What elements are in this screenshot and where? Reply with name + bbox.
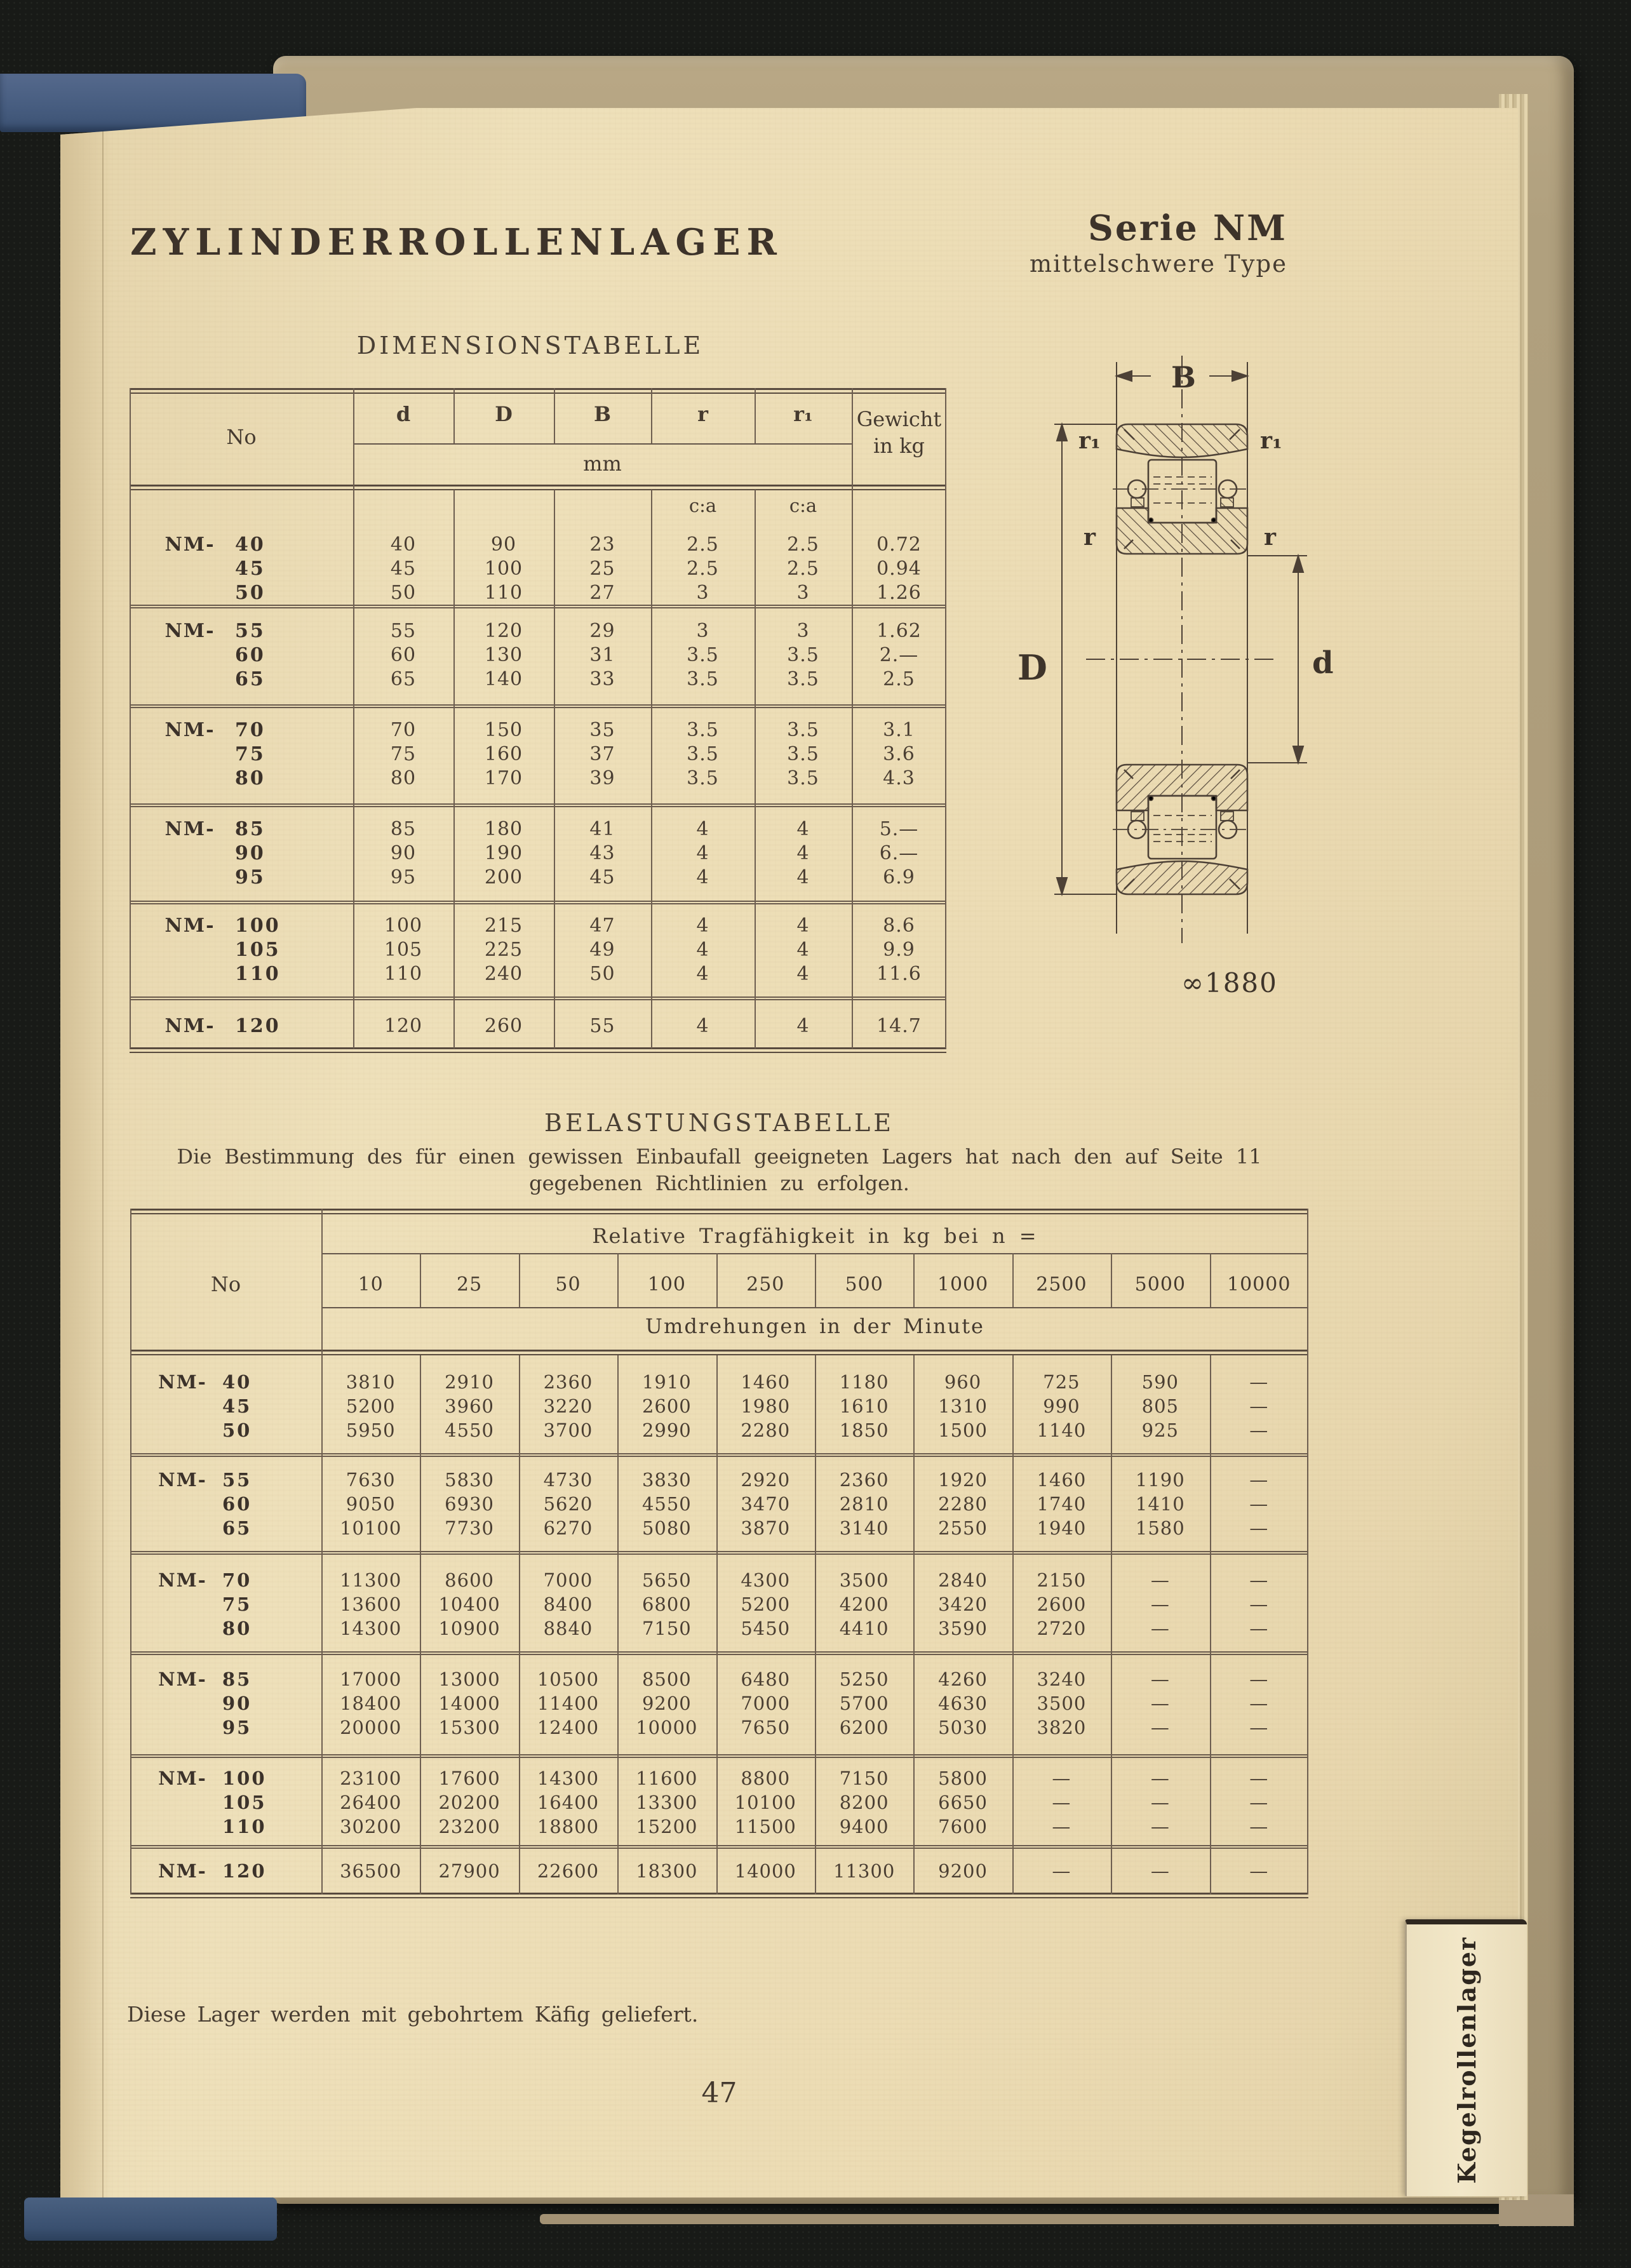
cell-r: 3: [651, 581, 755, 605]
cell-r: 4: [651, 817, 755, 842]
cell-r: 3.5: [651, 668, 755, 692]
table-row: 75 75 160 37 3.5 3.5 3.6: [130, 742, 946, 767]
bearing-size: 95: [222, 1717, 252, 1738]
cell-r1: 4: [755, 842, 852, 866]
bearing-size: 100: [235, 915, 281, 937]
bearing-number-cell: 45: [130, 557, 353, 581]
scanned-catalog-photo: { "scan": { "title": "ZYLINDERROLLENLAGE…: [0, 0, 1631, 2268]
cell-n5000: —: [1111, 1815, 1209, 1839]
table-row: 105 105 225 49 4 4 9.9: [130, 938, 946, 962]
cell-B: 37: [554, 742, 651, 767]
cell-B: 39: [554, 767, 651, 791]
column-header-D: D: [453, 402, 554, 426]
bearing-number-cell: 95: [130, 1715, 321, 1740]
group-separator: [130, 1845, 1308, 1849]
bearing-size: 100: [222, 1768, 267, 1789]
bearing-size: 65: [235, 668, 265, 690]
bearing-size: 75: [235, 743, 265, 765]
cell-r: 4: [651, 914, 755, 938]
cell-d: 50: [353, 581, 453, 605]
cell-n2500: —: [1012, 1790, 1111, 1815]
cell-n250: 7000: [716, 1691, 815, 1715]
bearing-prefix: NM-: [145, 619, 235, 643]
cell-n10: 11300: [321, 1568, 420, 1592]
cell-B: 43: [554, 842, 651, 866]
table-row: 95 95 200 45 4 4 6.9: [130, 866, 946, 890]
cell-n10000: —: [1210, 1715, 1308, 1740]
cell-d: 120: [353, 1014, 453, 1038]
table-rule: [353, 443, 852, 445]
cell-n50: 3220: [519, 1394, 617, 1418]
cell-n100: 3830: [617, 1468, 716, 1492]
bearing-size: 40: [222, 1371, 252, 1393]
cell-B: 49: [554, 938, 651, 962]
cell-d: 110: [353, 962, 453, 986]
dimension-group-rows: NM-120 120 260 55 4 4 14.7: [130, 1014, 946, 1038]
cell-n10000: —: [1210, 1370, 1308, 1394]
cell-n50: 12400: [519, 1715, 617, 1740]
cell-n50: 2360: [519, 1370, 617, 1394]
cell-r1: 4: [755, 962, 852, 986]
cell-n2500: 990: [1012, 1394, 1111, 1418]
cell-n500: 2810: [815, 1492, 913, 1516]
cell-n10: 30200: [321, 1815, 420, 1839]
cell-weight: 8.6: [852, 914, 946, 938]
cell-r1: 4: [755, 817, 852, 842]
cell-n250: 14000: [716, 1859, 815, 1883]
bearing-number-cell: 90: [130, 842, 353, 866]
cell-n10000: —: [1210, 1667, 1308, 1691]
cell-n5000: 805: [1111, 1394, 1209, 1418]
cell-n100: 9200: [617, 1691, 716, 1715]
cell-n500: 2360: [815, 1468, 913, 1492]
cell-n100: 5080: [617, 1516, 716, 1540]
cell-n25: 5830: [420, 1468, 518, 1492]
ca-label-r: c:a: [651, 495, 755, 516]
bearing-size: 90: [235, 842, 265, 864]
cell-n2500: 2150: [1012, 1568, 1111, 1592]
cell-n5000: 925: [1111, 1418, 1209, 1442]
cell-n500: 7150: [815, 1766, 913, 1790]
cell-n25: 7730: [420, 1516, 518, 1540]
cell-weight: 6.—: [852, 842, 946, 866]
column-header-r: r: [651, 402, 755, 426]
cell-n250: 10100: [716, 1790, 815, 1815]
cell-D: 225: [453, 938, 554, 962]
load-table-group: NM-70 11300 8600 7000 5650 4300 3500 284…: [130, 1568, 1308, 1641]
load-group-rows: NM-100 23100 17600 14300 11600 8800 7150…: [130, 1766, 1308, 1839]
cell-n25: 10400: [420, 1592, 518, 1616]
cell-n100: 5650: [617, 1568, 716, 1592]
series-name: Serie NM: [937, 208, 1287, 248]
table-row: 80 14300 10900 8840 7150 5450 4410 3590 …: [130, 1616, 1308, 1641]
cell-n10: 26400: [321, 1790, 420, 1815]
cell-r: 4: [651, 938, 755, 962]
group-separator: [130, 1651, 1308, 1655]
cell-n5000: —: [1111, 1691, 1209, 1715]
cell-d: 80: [353, 767, 453, 791]
table-row: NM-100 100 215 47 4 4 8.6: [130, 914, 946, 938]
speed-column-header: 1000: [913, 1273, 1012, 1296]
bearing-number-cell: 75: [130, 742, 353, 767]
cell-r: 3.5: [651, 742, 755, 767]
cell-n50: 3700: [519, 1418, 617, 1442]
load-group-rows: NM-85 17000 13000 10500 8500 6480 5250 4…: [130, 1667, 1308, 1740]
cell-n1000: 1310: [913, 1394, 1012, 1418]
cell-r: 4: [651, 842, 755, 866]
cell-n1000: 3420: [913, 1592, 1012, 1616]
cell-d: 100: [353, 914, 453, 938]
cell-n10000: —: [1210, 1468, 1308, 1492]
cell-n10: 10100: [321, 1516, 420, 1540]
bearing-size: 110: [235, 963, 281, 985]
bearing-prefix: NM-: [145, 533, 235, 557]
cell-D: 160: [453, 742, 554, 767]
table-rule: [321, 1307, 1308, 1308]
bearing-prefix: NM-: [143, 1468, 222, 1492]
cell-D: 215: [453, 914, 554, 938]
table-row: 95 20000 15300 12400 10000 7650 6200 503…: [130, 1715, 1308, 1740]
bearing-size: 105: [222, 1792, 267, 1813]
load-span-header: Relative Tragfähigkeit in kg bei n =: [321, 1224, 1308, 1248]
cell-n5000: —: [1111, 1667, 1209, 1691]
cell-d: 75: [353, 742, 453, 767]
bearing-size: 45: [222, 1395, 252, 1417]
cell-n500: 4200: [815, 1592, 913, 1616]
cell-n250: 5450: [716, 1616, 815, 1641]
bearing-number-cell: 45: [130, 1394, 321, 1418]
cell-n100: 2990: [617, 1418, 716, 1442]
table-row: 75 13600 10400 8400 6800 5200 4200 3420 …: [130, 1592, 1308, 1616]
cell-B: 45: [554, 866, 651, 890]
cell-n2500: 2600: [1012, 1592, 1111, 1616]
cell-r1: 4: [755, 938, 852, 962]
bearing-number-cell: 65: [130, 1516, 321, 1540]
cell-n25: 2910: [420, 1370, 518, 1394]
bearing-size: 70: [222, 1569, 252, 1591]
group-separator: [130, 996, 946, 1000]
cell-n25: 23200: [420, 1815, 518, 1839]
table-rule: [130, 1047, 946, 1053]
cell-n2500: 3500: [1012, 1691, 1111, 1715]
cell-n250: 2280: [716, 1418, 815, 1442]
bearing-number-cell: 110: [130, 962, 353, 986]
load-table-group: NM-100 23100 17600 14300 11600 8800 7150…: [130, 1766, 1308, 1839]
bearing-number-cell: 75: [130, 1592, 321, 1616]
load-group-rows: NM-70 11300 8600 7000 5650 4300 3500 284…: [130, 1568, 1308, 1641]
cell-D: 130: [453, 643, 554, 668]
speed-column-header: 25: [420, 1273, 518, 1296]
cell-n5000: —: [1111, 1790, 1209, 1815]
dimension-group-rows: NM-85 85 180 41 4 4 5.— 90 90: [130, 817, 946, 890]
cell-D: 140: [453, 668, 554, 692]
cell-n500: 11300: [815, 1859, 913, 1883]
cell-weight: 3.6: [852, 742, 946, 767]
group-separator: [130, 1453, 1308, 1457]
cell-D: 120: [453, 619, 554, 643]
cell-n10000: —: [1210, 1592, 1308, 1616]
load-table-group: NM-55 7630 5830 4730 3830 2920 2360 1920…: [130, 1468, 1308, 1540]
cell-n10000: —: [1210, 1418, 1308, 1442]
table-row: NM-55 7630 5830 4730 3830 2920 2360 1920…: [130, 1468, 1308, 1492]
cell-n250: 4300: [716, 1568, 815, 1592]
page-gutter-shading: [60, 108, 119, 2198]
intro-line-2: gegebenen Richtlinien zu erfolgen.: [130, 1171, 1308, 1195]
cell-r: 4: [651, 866, 755, 890]
cell-n100: 18300: [617, 1859, 716, 1883]
bearing-number-cell: NM-55: [130, 1468, 321, 1492]
cell-n10000: —: [1210, 1691, 1308, 1715]
bearing-prefix: NM-: [143, 1859, 222, 1883]
bearing-number-cell: 50: [130, 1418, 321, 1442]
bearing-size: 60: [222, 1493, 252, 1515]
bearing-size: 55: [235, 620, 265, 642]
bearing-number-cell: 90: [130, 1691, 321, 1715]
dimension-table-group: NM-120 120 260 55 4 4 14.7: [130, 1014, 946, 1038]
cell-n250: 1460: [716, 1370, 815, 1394]
cell-d: 105: [353, 938, 453, 962]
cell-B: 41: [554, 817, 651, 842]
table-row: NM-70 11300 8600 7000 5650 4300 3500 284…: [130, 1568, 1308, 1592]
cell-n1000: 4630: [913, 1691, 1012, 1715]
cell-d: 95: [353, 866, 453, 890]
cell-n50: 8400: [519, 1592, 617, 1616]
table-row: NM-85 85 180 41 4 4 5.—: [130, 817, 946, 842]
table-rule: [130, 388, 946, 394]
cell-r1: 3.5: [755, 718, 852, 742]
bearing-prefix: NM-: [143, 1370, 222, 1394]
cell-r: 2.5: [651, 557, 755, 581]
cell-B: 29: [554, 619, 651, 643]
cell-n2500: 725: [1012, 1370, 1111, 1394]
cell-n2500: 1460: [1012, 1468, 1111, 1492]
cell-n500: 3140: [815, 1516, 913, 1540]
cell-n1000: 4260: [913, 1667, 1012, 1691]
bearing-prefix: NM-: [145, 1014, 235, 1038]
cell-n2500: —: [1012, 1859, 1111, 1883]
cell-n500: 3500: [815, 1568, 913, 1592]
dimension-group-rows: NM-40 40 90 23 2.5 2.5 0.72 45: [130, 533, 946, 605]
cell-n100: 13300: [617, 1790, 716, 1815]
cell-n250: 5200: [716, 1592, 815, 1616]
cell-n5000: 590: [1111, 1370, 1209, 1394]
cell-n500: 5250: [815, 1667, 913, 1691]
load-group-rows: NM-120 36500 27900 22600 18300 14000 113…: [130, 1859, 1308, 1883]
cell-D: 240: [453, 962, 554, 986]
cell-n10000: —: [1210, 1815, 1308, 1839]
cell-d: 65: [353, 668, 453, 692]
table-row: 45 5200 3960 3220 2600 1980 1610 1310 99…: [130, 1394, 1308, 1418]
cell-n25: 20200: [420, 1790, 518, 1815]
book-cover-bottom-edge: [540, 2214, 1529, 2224]
column-header-no: No: [130, 425, 353, 449]
cell-n1000: 1500: [913, 1418, 1012, 1442]
dimension-table-title: DIMENSIONSTABELLE: [308, 332, 753, 359]
dimension-table-group: NM-70 70 150 35 3.5 3.5 3.1 75: [130, 718, 946, 791]
cell-weight: 5.—: [852, 817, 946, 842]
cell-r1: 3.5: [755, 643, 852, 668]
cell-n10000: —: [1210, 1492, 1308, 1516]
dimension-table-group: NM-55 55 120 29 3 3 1.62 60 6: [130, 619, 946, 692]
bearing-prefix: NM-: [145, 718, 235, 742]
cell-n5000: —: [1111, 1592, 1209, 1616]
cell-n5000: —: [1111, 1616, 1209, 1641]
cell-n10: 5200: [321, 1394, 420, 1418]
drawing-label-r1-right: r₁: [1260, 427, 1282, 454]
cell-r1: 3.5: [755, 767, 852, 791]
bearing-number-cell: 60: [130, 1492, 321, 1516]
cell-r1: 3.5: [755, 668, 852, 692]
cell-n250: 1980: [716, 1394, 815, 1418]
bearing-number-cell: 60: [130, 643, 353, 668]
cell-n10000: —: [1210, 1394, 1308, 1418]
table-row: NM-85 17000 13000 10500 8500 6480 5250 4…: [130, 1667, 1308, 1691]
cell-weight: 11.6: [852, 962, 946, 986]
cell-r: 2.5: [651, 533, 755, 557]
footer-note: Diese Lager werden mit gebohrtem Käfig g…: [127, 2002, 698, 2027]
cell-D: 90: [453, 533, 554, 557]
cell-r: 3: [651, 619, 755, 643]
cell-n10000: —: [1210, 1859, 1308, 1883]
cell-n5000: 1410: [1111, 1492, 1209, 1516]
dimension-table-group: NM-40 40 90 23 2.5 2.5 0.72 45: [130, 533, 946, 605]
table-row: 110 30200 23200 18800 15200 11500 9400 7…: [130, 1815, 1308, 1839]
table-rule: [130, 485, 946, 490]
cell-weight: 9.9: [852, 938, 946, 962]
speed-column-header: 2500: [1012, 1273, 1111, 1296]
bearing-number-cell: NM-85: [130, 817, 353, 842]
drawing-label-B: B: [1171, 360, 1196, 394]
cell-n100: 10000: [617, 1715, 716, 1740]
cell-n50: 16400: [519, 1790, 617, 1815]
cell-weight: 1.62: [852, 619, 946, 643]
cell-n25: 27900: [420, 1859, 518, 1883]
column-header-B: B: [554, 402, 651, 426]
table-row: 50 5950 4550 3700 2990 2280 1850 1500 11…: [130, 1418, 1308, 1442]
cell-D: 190: [453, 842, 554, 866]
speed-column-header: 250: [716, 1273, 815, 1296]
table-row: NM-120 120 260 55 4 4 14.7: [130, 1014, 946, 1038]
cell-r1: 4: [755, 914, 852, 938]
cell-n250: 2920: [716, 1468, 815, 1492]
bearing-prefix: NM-: [143, 1667, 222, 1691]
cell-n50: 10500: [519, 1667, 617, 1691]
group-separator: [130, 901, 946, 904]
cell-B: 33: [554, 668, 651, 692]
load-sub-header: Umdrehungen in der Minute: [321, 1314, 1308, 1338]
cell-n100: 11600: [617, 1766, 716, 1790]
cell-r: 4: [651, 1014, 755, 1038]
bearing-prefix: NM-: [145, 817, 235, 842]
cell-n10000: —: [1210, 1568, 1308, 1592]
table-row: 45 45 100 25 2.5 2.5 0.94: [130, 557, 946, 581]
cell-n10000: —: [1210, 1616, 1308, 1641]
bearing-size: 70: [235, 719, 265, 741]
bearing-number-cell: NM-40: [130, 533, 353, 557]
cell-n1000: 1920: [913, 1468, 1012, 1492]
cell-d: 55: [353, 619, 453, 643]
speed-column-header: 100: [617, 1273, 716, 1296]
table-rule: [130, 1209, 1308, 1214]
load-group-rows: NM-55 7630 5830 4730 3830 2920 2360 1920…: [130, 1468, 1308, 1540]
cell-n10: 3810: [321, 1370, 420, 1394]
cell-B: 23: [554, 533, 651, 557]
cell-r1: 2.5: [755, 557, 852, 581]
cell-n5000: —: [1111, 1715, 1209, 1740]
bearing-size: 85: [222, 1668, 252, 1690]
table-rule: [130, 1350, 1308, 1355]
group-separator: [130, 803, 946, 807]
group-separator: [130, 704, 946, 708]
load-table-title: BELASTUNGSTABELLE: [130, 1109, 1308, 1137]
cell-B: 47: [554, 914, 651, 938]
cell-weight: 3.1: [852, 718, 946, 742]
bearing-size: 80: [235, 767, 265, 789]
cell-D: 200: [453, 866, 554, 890]
cell-n5000: —: [1111, 1568, 1209, 1592]
bearing-size: 50: [235, 582, 265, 604]
cell-n25: 14000: [420, 1691, 518, 1715]
cell-n25: 17600: [420, 1766, 518, 1790]
bearing-size: 120: [235, 1015, 281, 1037]
dimension-table-group: NM-85 85 180 41 4 4 5.— 90 90: [130, 817, 946, 890]
table-row: NM-100 23100 17600 14300 11600 8800 7150…: [130, 1766, 1308, 1790]
cell-weight: 14.7: [852, 1014, 946, 1038]
cell-n50: 14300: [519, 1766, 617, 1790]
drawing-label-r1-left: r₁: [1078, 427, 1101, 454]
page-number: 47: [130, 2077, 1308, 2109]
cell-n10: 13600: [321, 1592, 420, 1616]
table-row: 60 60 130 31 3.5 3.5 2.—: [130, 643, 946, 668]
bearing-number-cell: 80: [130, 767, 353, 791]
bearing-size: 90: [222, 1693, 252, 1714]
bearing-prefix: NM-: [145, 914, 235, 938]
speed-column-header: 50: [519, 1273, 617, 1296]
drawing-label-D: D: [1017, 647, 1047, 688]
cell-n100: 8500: [617, 1667, 716, 1691]
bearing-cross-section-drawing: B D d r₁ r₁ r r ∞1880: [991, 343, 1435, 1023]
bearing-number-cell: 50: [130, 581, 353, 605]
cell-n2500: 3820: [1012, 1715, 1111, 1740]
cell-weight: 2.5: [852, 668, 946, 692]
drawing-label-r-right: r: [1264, 524, 1277, 551]
cell-n1000: 960: [913, 1370, 1012, 1394]
load-group-rows: NM-40 3810 2910 2360 1910 1460 1180 960 …: [130, 1370, 1308, 1442]
bearing-number-cell: 105: [130, 938, 353, 962]
index-tab-label: Kegelrollenlager: [1453, 1936, 1481, 2184]
cell-n10: 18400: [321, 1691, 420, 1715]
speed-column-headers: 10255010025050010002500500010000: [321, 1273, 1308, 1296]
cell-n2500: 1940: [1012, 1516, 1111, 1540]
cell-n25: 13000: [420, 1667, 518, 1691]
cell-d: 60: [353, 643, 453, 668]
dimension-group-rows: NM-100 100 215 47 4 4 8.6 105: [130, 914, 946, 986]
group-separator: [130, 1754, 1308, 1758]
cell-weight: 4.3: [852, 767, 946, 791]
cell-n500: 5700: [815, 1691, 913, 1715]
cell-r1: 3.5: [755, 742, 852, 767]
cell-n1000: 2280: [913, 1492, 1012, 1516]
bearing-size: 110: [222, 1816, 267, 1837]
cell-n250: 11500: [716, 1815, 815, 1839]
cell-d: 85: [353, 817, 453, 842]
drawing-label-d: d: [1312, 645, 1334, 681]
cell-n2500: —: [1012, 1815, 1111, 1839]
cell-n100: 2600: [617, 1394, 716, 1418]
table-row: 80 80 170 39 3.5 3.5 4.3: [130, 767, 946, 791]
cell-n25: 15300: [420, 1715, 518, 1740]
cell-n10000: —: [1210, 1766, 1308, 1790]
